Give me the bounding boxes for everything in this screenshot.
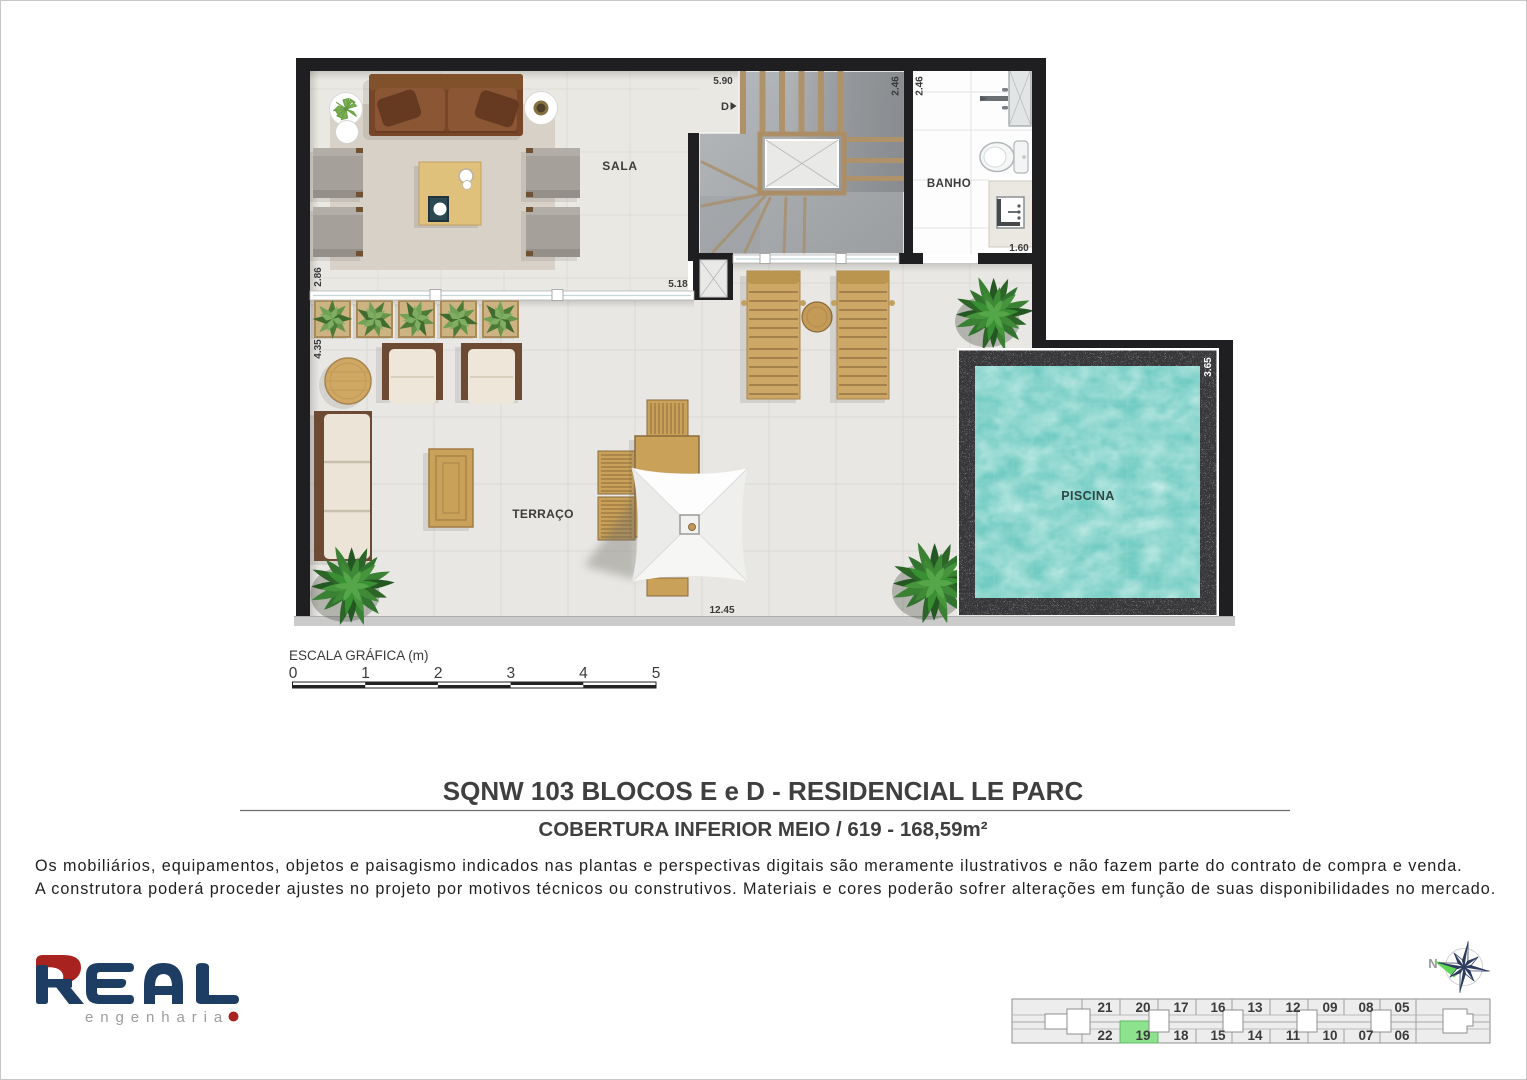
svg-text:08: 08	[1358, 1000, 1374, 1015]
svg-text:20: 20	[1135, 1000, 1150, 1015]
svg-text:ESCALA GRÁFICA (m): ESCALA GRÁFICA (m)	[289, 648, 429, 663]
svg-text:22: 22	[1097, 1028, 1112, 1043]
svg-text:SQNW 103 BLOCOS E e D - RESID: SQNW 103 BLOCOS E e D - RESIDENCIAL LE P…	[443, 776, 1084, 806]
svg-text:07: 07	[1358, 1028, 1373, 1043]
svg-text:engenharia: engenharia	[85, 1009, 229, 1026]
svg-text:D: D	[721, 101, 729, 113]
svg-text:05: 05	[1394, 1000, 1410, 1015]
svg-text:12: 12	[1285, 1000, 1300, 1015]
svg-text:N: N	[1428, 956, 1437, 971]
svg-text:Os mobiliários, equipamentos,: Os mobiliários, equipamentos, objetos e …	[35, 857, 1463, 875]
svg-text:5.90: 5.90	[713, 76, 733, 87]
svg-text:2.86: 2.86	[313, 267, 324, 287]
svg-text:2: 2	[434, 665, 443, 682]
svg-text:PISCINA: PISCINA	[1061, 489, 1115, 503]
svg-text:BANHO: BANHO	[927, 178, 971, 190]
svg-text:COBERTURA INFERIOR MEIO / 619: COBERTURA INFERIOR MEIO / 619 - 168,59m²	[538, 818, 987, 841]
svg-text:1: 1	[361, 665, 370, 682]
svg-text:0: 0	[289, 665, 298, 682]
svg-text:06: 06	[1394, 1028, 1410, 1043]
svg-text:TERRAÇO: TERRAÇO	[512, 507, 573, 521]
svg-text:12.45: 12.45	[709, 605, 734, 616]
svg-text:3: 3	[506, 665, 515, 682]
svg-text:5.18: 5.18	[668, 279, 688, 290]
svg-text:16: 16	[1210, 1000, 1226, 1015]
svg-text:2.46: 2.46	[915, 76, 926, 96]
svg-text:19: 19	[1135, 1028, 1150, 1043]
svg-text:3.65: 3.65	[1203, 357, 1214, 377]
svg-text:11: 11	[1286, 1028, 1301, 1043]
svg-text:18: 18	[1173, 1028, 1189, 1043]
svg-text:13: 13	[1247, 1000, 1263, 1015]
svg-text:A construtora poderá proceder: A construtora poderá proceder ajustes no…	[35, 880, 1496, 898]
svg-text:10: 10	[1322, 1028, 1337, 1043]
svg-text:09: 09	[1322, 1000, 1337, 1015]
svg-text:1.60: 1.60	[1009, 243, 1029, 254]
svg-text:4.35: 4.35	[313, 339, 324, 359]
svg-text:17: 17	[1173, 1000, 1188, 1015]
svg-text:2.46: 2.46	[891, 76, 902, 96]
svg-text:21: 21	[1097, 1000, 1113, 1015]
svg-text:5: 5	[652, 665, 661, 682]
svg-text:SALA: SALA	[602, 159, 637, 173]
svg-text:15: 15	[1210, 1028, 1226, 1043]
svg-text:4: 4	[579, 665, 588, 682]
svg-text:14: 14	[1247, 1028, 1263, 1043]
